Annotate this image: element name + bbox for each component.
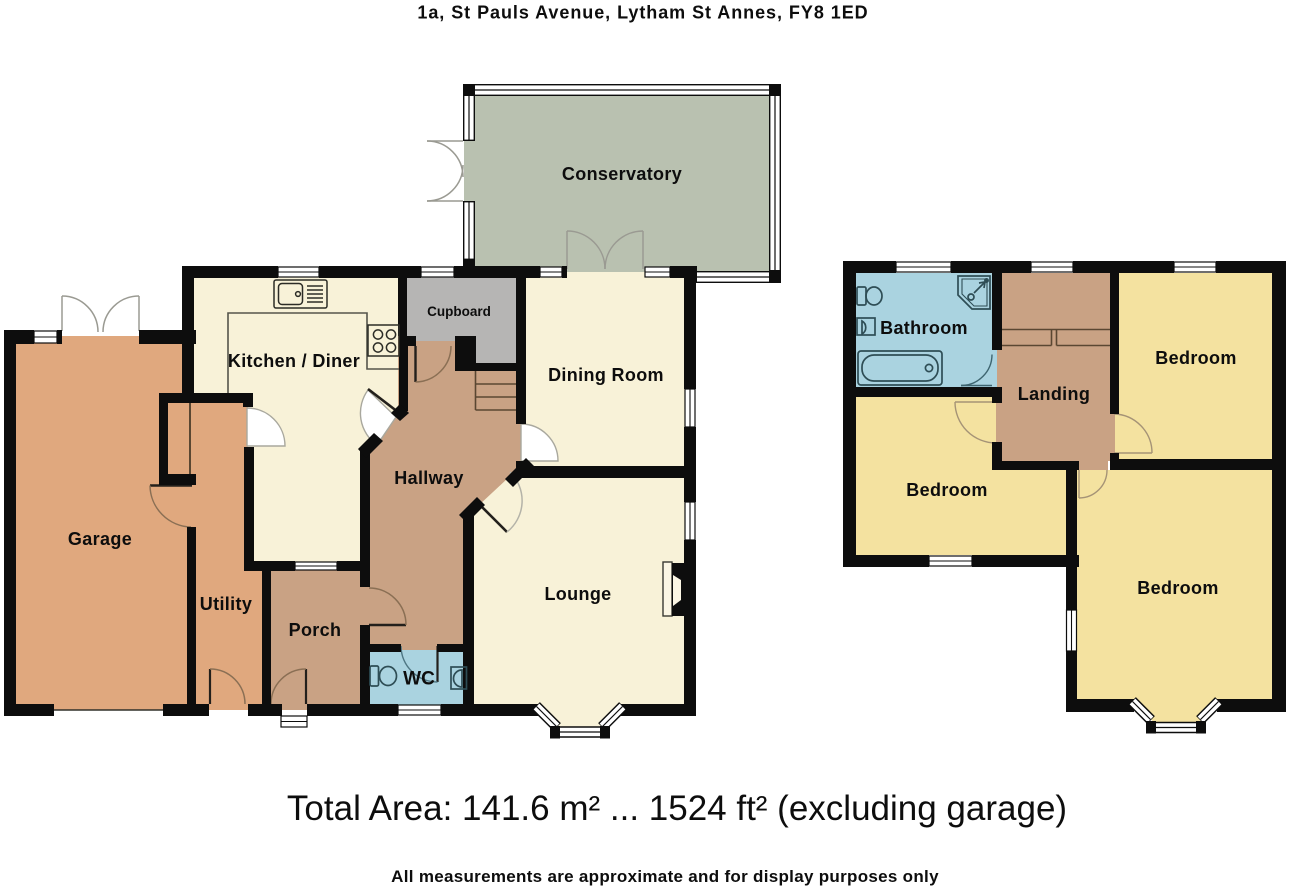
svg-text:Landing: Landing	[1018, 384, 1090, 404]
svg-text:Porch: Porch	[289, 620, 342, 640]
svg-text:Total Area: 141.6 m² ... 1524: Total Area: 141.6 m² ... 1524 ft² (exclu…	[287, 789, 1067, 828]
svg-text:Kitchen / Diner: Kitchen / Diner	[228, 351, 360, 371]
svg-text:Utility: Utility	[200, 594, 252, 614]
svg-text:WC: WC	[403, 669, 435, 690]
svg-text:Cupboard: Cupboard	[427, 304, 491, 319]
svg-text:1a, St Pauls Avenue, Lytham St: 1a, St Pauls Avenue, Lytham St Annes, FY…	[417, 3, 868, 23]
svg-text:Dining Room: Dining Room	[548, 365, 664, 385]
svg-text:Garage: Garage	[68, 529, 132, 549]
svg-text:All measurements are approxima: All measurements are approximate and for…	[391, 867, 939, 886]
svg-text:Hallway: Hallway	[394, 468, 463, 488]
svg-text:Bedroom: Bedroom	[1155, 348, 1236, 368]
svg-text:Bedroom: Bedroom	[906, 480, 987, 500]
svg-text:Conservatory: Conservatory	[562, 164, 682, 184]
svg-text:Lounge: Lounge	[544, 584, 611, 604]
svg-text:Bathroom: Bathroom	[880, 318, 968, 338]
svg-text:Bedroom: Bedroom	[1137, 578, 1218, 598]
